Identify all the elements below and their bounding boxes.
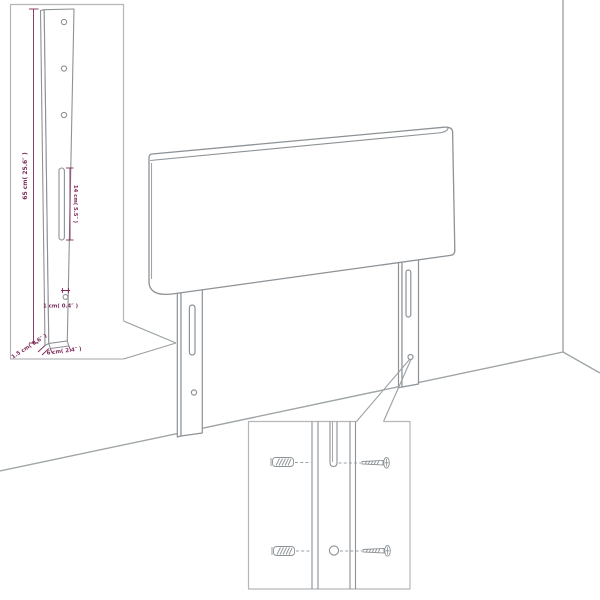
slot-length-label: 14 cm( 5.5″ ) [72, 185, 78, 223]
hole-diameter-label: 1 cm( 0.4″ ) [43, 304, 78, 310]
wall-plug-icon [272, 547, 295, 556]
leg-detail-inset: 65 cm( 25.6″ ) 14 cm( 5.5″ ) 1 cm( 0.4″ … [11, 5, 124, 361]
floor-line-right [563, 352, 600, 373]
leg-height-label: 65 cm( 25.6″ ) [22, 152, 29, 200]
left-callout-leader-top [124, 321, 177, 343]
hardware-detail-inset [249, 422, 411, 590]
right-callout-leader-right [384, 360, 412, 422]
right-callout-leader-left [357, 360, 410, 422]
hardware-inset-border [249, 422, 411, 590]
left-callout-leader-bottom [124, 343, 177, 359]
bracket-hole-3 [61, 112, 66, 117]
bracket-hole-1 [61, 19, 66, 24]
left-leg-slot [189, 305, 195, 355]
headboard-assembly-diagram: 65 cm( 25.6″ ) 14 cm( 5.5″ ) 1 cm( 0.4″ … [0, 0, 600, 600]
bracket-slot [59, 168, 64, 240]
bracket-bottom-hole [63, 295, 68, 300]
right-leg [399, 254, 419, 388]
left-leg [177, 286, 202, 437]
bracket-hole-2 [61, 66, 66, 71]
wall-plug-icon [271, 458, 294, 467]
left-leg-hole [191, 390, 196, 395]
callout-leaders [124, 321, 412, 422]
right-leg-slot [406, 270, 411, 317]
right-leg-hole [408, 355, 413, 360]
